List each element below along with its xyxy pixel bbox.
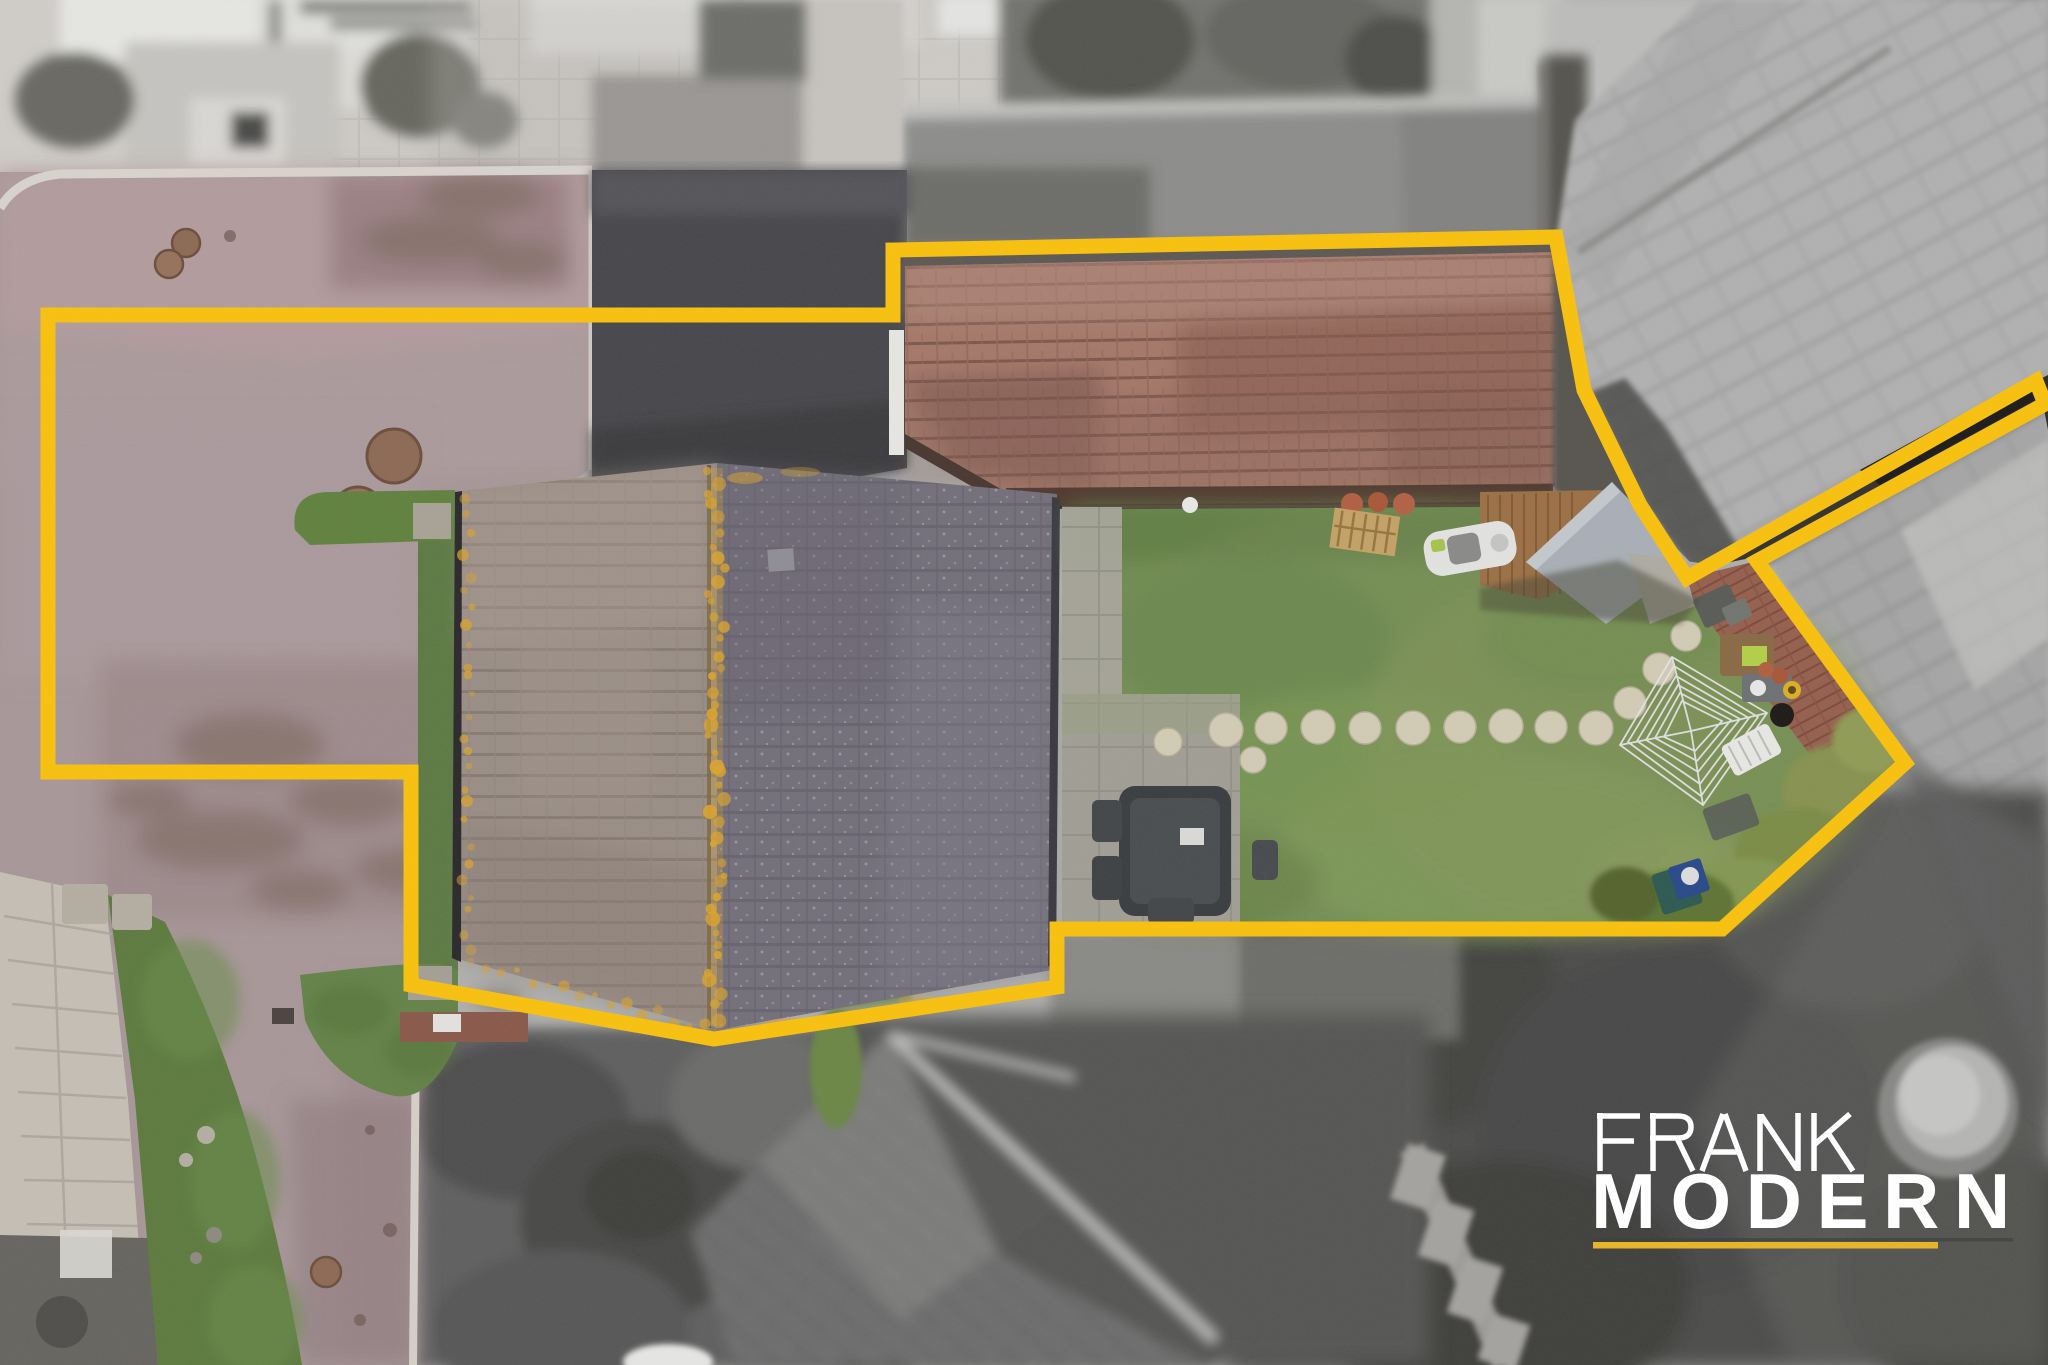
svg-text:MODERN: MODERN [1591, 1157, 2025, 1245]
